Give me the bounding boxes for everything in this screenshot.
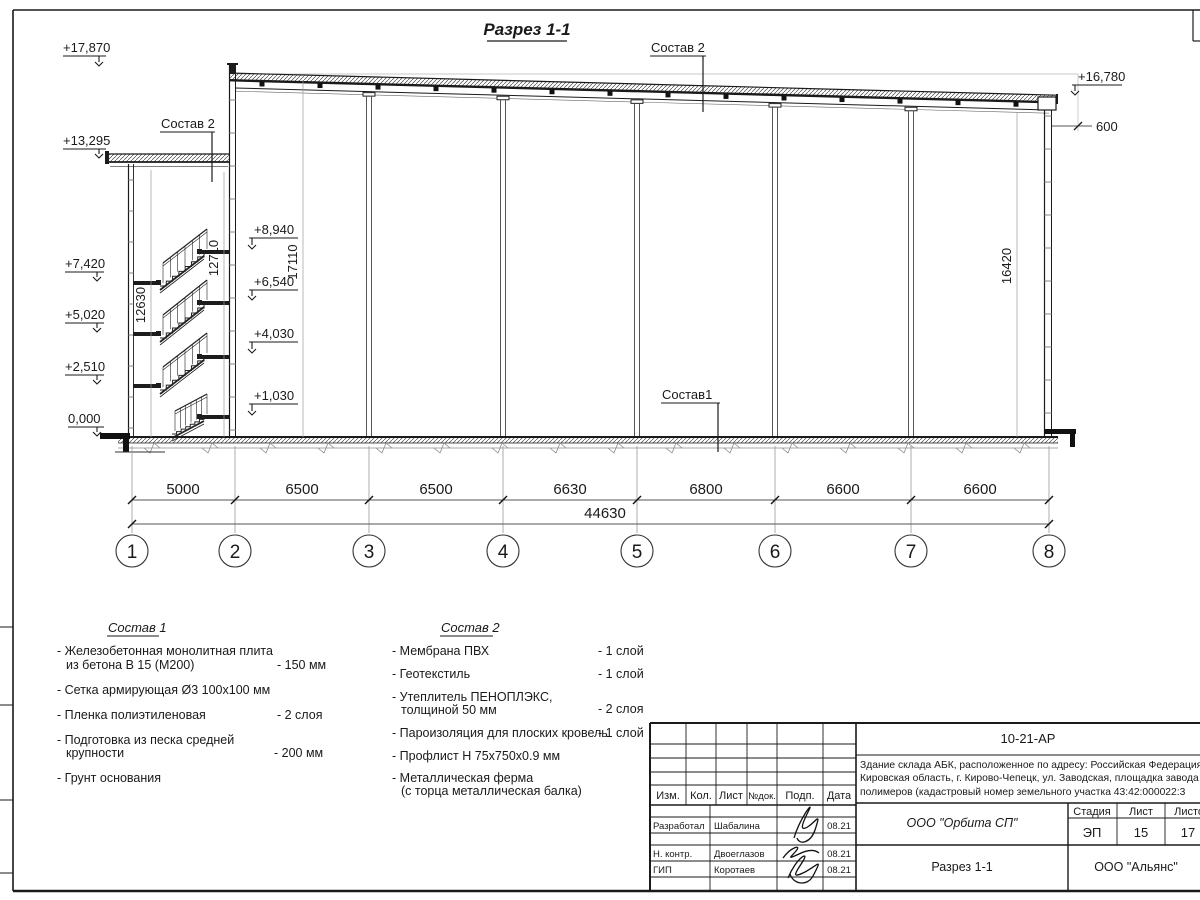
svg-text:- 200 мм: - 200 мм — [274, 746, 323, 760]
sig-name-1: Двоеглазов — [714, 849, 765, 860]
elevation-mark: +7,420 — [65, 256, 105, 281]
elevation-mark: +16,780 — [1071, 69, 1125, 95]
sig-name-0: Шабалина — [714, 821, 761, 832]
span-dimensions: 5000 6500 6500 6630 6800 6600 6600 44630 — [128, 446, 1053, 533]
title-block: 10-21-АР Здание склада АБК, расположенно… — [650, 723, 1200, 891]
elevation-mark: +5,020 — [65, 307, 105, 332]
grid-axis-bubble: 7 — [895, 535, 927, 567]
svg-text:0,000: 0,000 — [68, 411, 101, 426]
svg-text:- Пароизоляция для плоских кро: - Пароизоляция для плоских кровель — [392, 726, 608, 740]
grid-axis-bubble: 1 — [116, 535, 148, 567]
svg-text:+16,780: +16,780 — [1078, 69, 1125, 84]
svg-text:4: 4 — [498, 542, 509, 563]
label-sostav2-roof: Состав 2 — [651, 40, 705, 55]
hall-columns — [363, 93, 917, 437]
elevation-mark: +17,870 — [63, 40, 110, 66]
span-dim: 5000 — [166, 481, 199, 498]
offset-600-dim: 600 — [1052, 119, 1118, 134]
total-dim: 44630 — [584, 505, 626, 522]
elevation-mark: +1,030 — [248, 388, 298, 415]
doc-number: 10-21-АР — [1001, 731, 1056, 746]
label-sostav2-annex: Состав 2 — [161, 116, 215, 131]
svg-text:- Сетка армирующая Ø3 100х100: - Сетка армирующая Ø3 100х100 мм — [57, 683, 270, 697]
col-izm: Изм. — [656, 790, 680, 802]
grid-axis-bubble: 6 — [759, 535, 791, 567]
vertical-dimensions: 12630 12710 17110 16420 — [133, 80, 1017, 437]
svg-text:- Металлическая ферма: - Металлическая ферма — [392, 771, 533, 785]
designer-org: ООО "Орбита СП" — [907, 816, 1019, 830]
span-dim: 6600 — [963, 481, 996, 498]
sig-role-0: Разработал — [653, 821, 705, 832]
span-dim: 6500 — [419, 481, 452, 498]
svg-text:7: 7 — [906, 542, 917, 563]
svg-text:+17,870: +17,870 — [63, 40, 110, 55]
elevation-mark: +2,510 — [65, 359, 105, 384]
svg-text:- Мембрана ПВХ: - Мембрана ПВХ — [392, 644, 490, 658]
composition1-list: Состав 1 - Железобетонная монолитная пли… — [57, 620, 326, 785]
svg-text:- 1 слой: - 1 слой — [598, 644, 644, 658]
sig-date-1: 08.21 — [827, 849, 851, 860]
sheet-frame — [0, 10, 1200, 891]
section-title: Разрез 1-1 — [483, 20, 570, 41]
col-ndok: №док. — [748, 791, 776, 802]
svg-text:+7,420: +7,420 — [65, 256, 105, 271]
svg-text:- Грунт основания: - Грунт основания — [57, 771, 161, 785]
svg-text:6: 6 — [770, 542, 781, 563]
vdim-12630: 12630 — [133, 287, 148, 323]
svg-text:5: 5 — [632, 542, 643, 563]
sig-role-1: Н. контр. — [653, 849, 692, 860]
svg-text:+8,940: +8,940 — [254, 222, 294, 237]
sig-date-2: 08.21 — [827, 865, 851, 876]
sheet-value: 15 — [1134, 825, 1148, 840]
svg-text:толщиной 50 мм: толщиной 50 мм — [401, 703, 497, 717]
elevation-mark: 0,000 — [68, 411, 104, 436]
svg-text:- Подготовка из песка средней: - Подготовка из песка средней — [57, 733, 234, 747]
stair-flights — [160, 229, 207, 441]
svg-text:+5,020: +5,020 — [65, 307, 105, 322]
svg-text:- 2 слоя: - 2 слоя — [277, 708, 322, 722]
grid-axis-bubble: 3 — [353, 535, 385, 567]
svg-text:2: 2 — [230, 542, 241, 563]
col-podp: Подп. — [785, 790, 814, 802]
label-sostav1-floor: Состав1 — [662, 387, 712, 402]
svg-text:- 2 слоя: - 2 слоя — [598, 702, 643, 716]
svg-text:- 1 слой: - 1 слой — [598, 726, 644, 740]
svg-text:- Железобетонная монолитная п: - Железобетонная монолитная плита — [57, 644, 273, 658]
vdim-16420: 16420 — [999, 248, 1014, 284]
svg-text:из бетона В 15 (М200): из бетона В 15 (М200) — [66, 658, 194, 672]
svg-text:3: 3 — [364, 542, 375, 563]
project-line-1: Здание склада АБК, расположенное по адре… — [860, 760, 1200, 771]
svg-text:крупности: крупности — [66, 746, 124, 760]
elevation-mark: +13,295 — [63, 133, 110, 158]
span-dim: 6800 — [689, 481, 722, 498]
svg-text:- Геотекстиль: - Геотекстиль — [392, 667, 470, 681]
col-list: Лист — [719, 790, 743, 802]
svg-text:1: 1 — [127, 542, 138, 563]
grid-axis-bubble: 8 — [1033, 535, 1065, 567]
span-dim: 6500 — [285, 481, 318, 498]
sheets-header: Листов — [1174, 806, 1200, 818]
project-line-2: Кировская область, г. Кирово-Чепецк, ул.… — [860, 772, 1199, 784]
section-linework — [100, 64, 1078, 453]
svg-text:600: 600 — [1096, 119, 1118, 134]
elevation-mark: +4,030 — [248, 326, 298, 353]
sig-date-0: 08.21 — [827, 821, 851, 832]
grid-axis-bubble: 5 — [621, 535, 653, 567]
view-name: Разрез 1-1 — [931, 860, 992, 874]
section-title-text: Разрез 1-1 — [483, 20, 570, 39]
svg-text:+1,030: +1,030 — [254, 388, 294, 403]
stage-value: ЭП — [1083, 825, 1102, 840]
col-kol: Кол. — [690, 790, 712, 802]
svg-text:+4,030: +4,030 — [254, 326, 294, 341]
drawing-sheet: Разрез 1-1 — [0, 0, 1200, 900]
sig-name-2: Коротаев — [714, 865, 755, 876]
composition2-title: Состав 2 — [441, 620, 500, 635]
grid-axes: 1 2 3 4 5 6 7 8 — [116, 535, 1065, 567]
composition2-list: Состав 2 - Мембрана ПВХ - 1 слой - Геоте… — [392, 620, 644, 798]
svg-text:- 150 мм: - 150 мм — [277, 658, 326, 672]
svg-text:8: 8 — [1044, 542, 1055, 563]
sheets-value: 17 — [1181, 825, 1195, 840]
span-dim: 6600 — [826, 481, 859, 498]
stage-header: Стадия — [1073, 806, 1111, 818]
sheet-header: Лист — [1129, 806, 1153, 818]
sig-role-2: ГИП — [653, 865, 672, 876]
svg-text:+13,295: +13,295 — [63, 133, 110, 148]
vdim-17110: 17110 — [285, 244, 300, 279]
span-dim: 6630 — [553, 481, 586, 498]
svg-text:+2,510: +2,510 — [65, 359, 105, 374]
svg-text:- 1 слой: - 1 слой — [598, 667, 644, 681]
project-line-3: полимеров (кадастровый номер земельного … — [860, 787, 1186, 798]
vdim-12710: 12710 — [206, 240, 221, 276]
svg-text:- Пленка полиэтиленовая: - Пленка полиэтиленовая — [57, 708, 206, 722]
grid-axis-bubble: 4 — [487, 535, 519, 567]
svg-text:- Профлист Н 75х750х0.9 мм: - Профлист Н 75х750х0.9 мм — [392, 749, 560, 763]
client-org: ООО "Альянс" — [1094, 860, 1178, 874]
svg-text:(с торца металлическая балка): (с торца металлическая балка) — [401, 784, 582, 798]
svg-text:- Утеплитель ПЕНОПЛЭКС,: - Утеплитель ПЕНОПЛЭКС, — [392, 690, 552, 704]
grid-axis-bubble: 2 — [219, 535, 251, 567]
composition1-title: Состав 1 — [108, 620, 167, 635]
col-data: Дата — [827, 790, 852, 802]
